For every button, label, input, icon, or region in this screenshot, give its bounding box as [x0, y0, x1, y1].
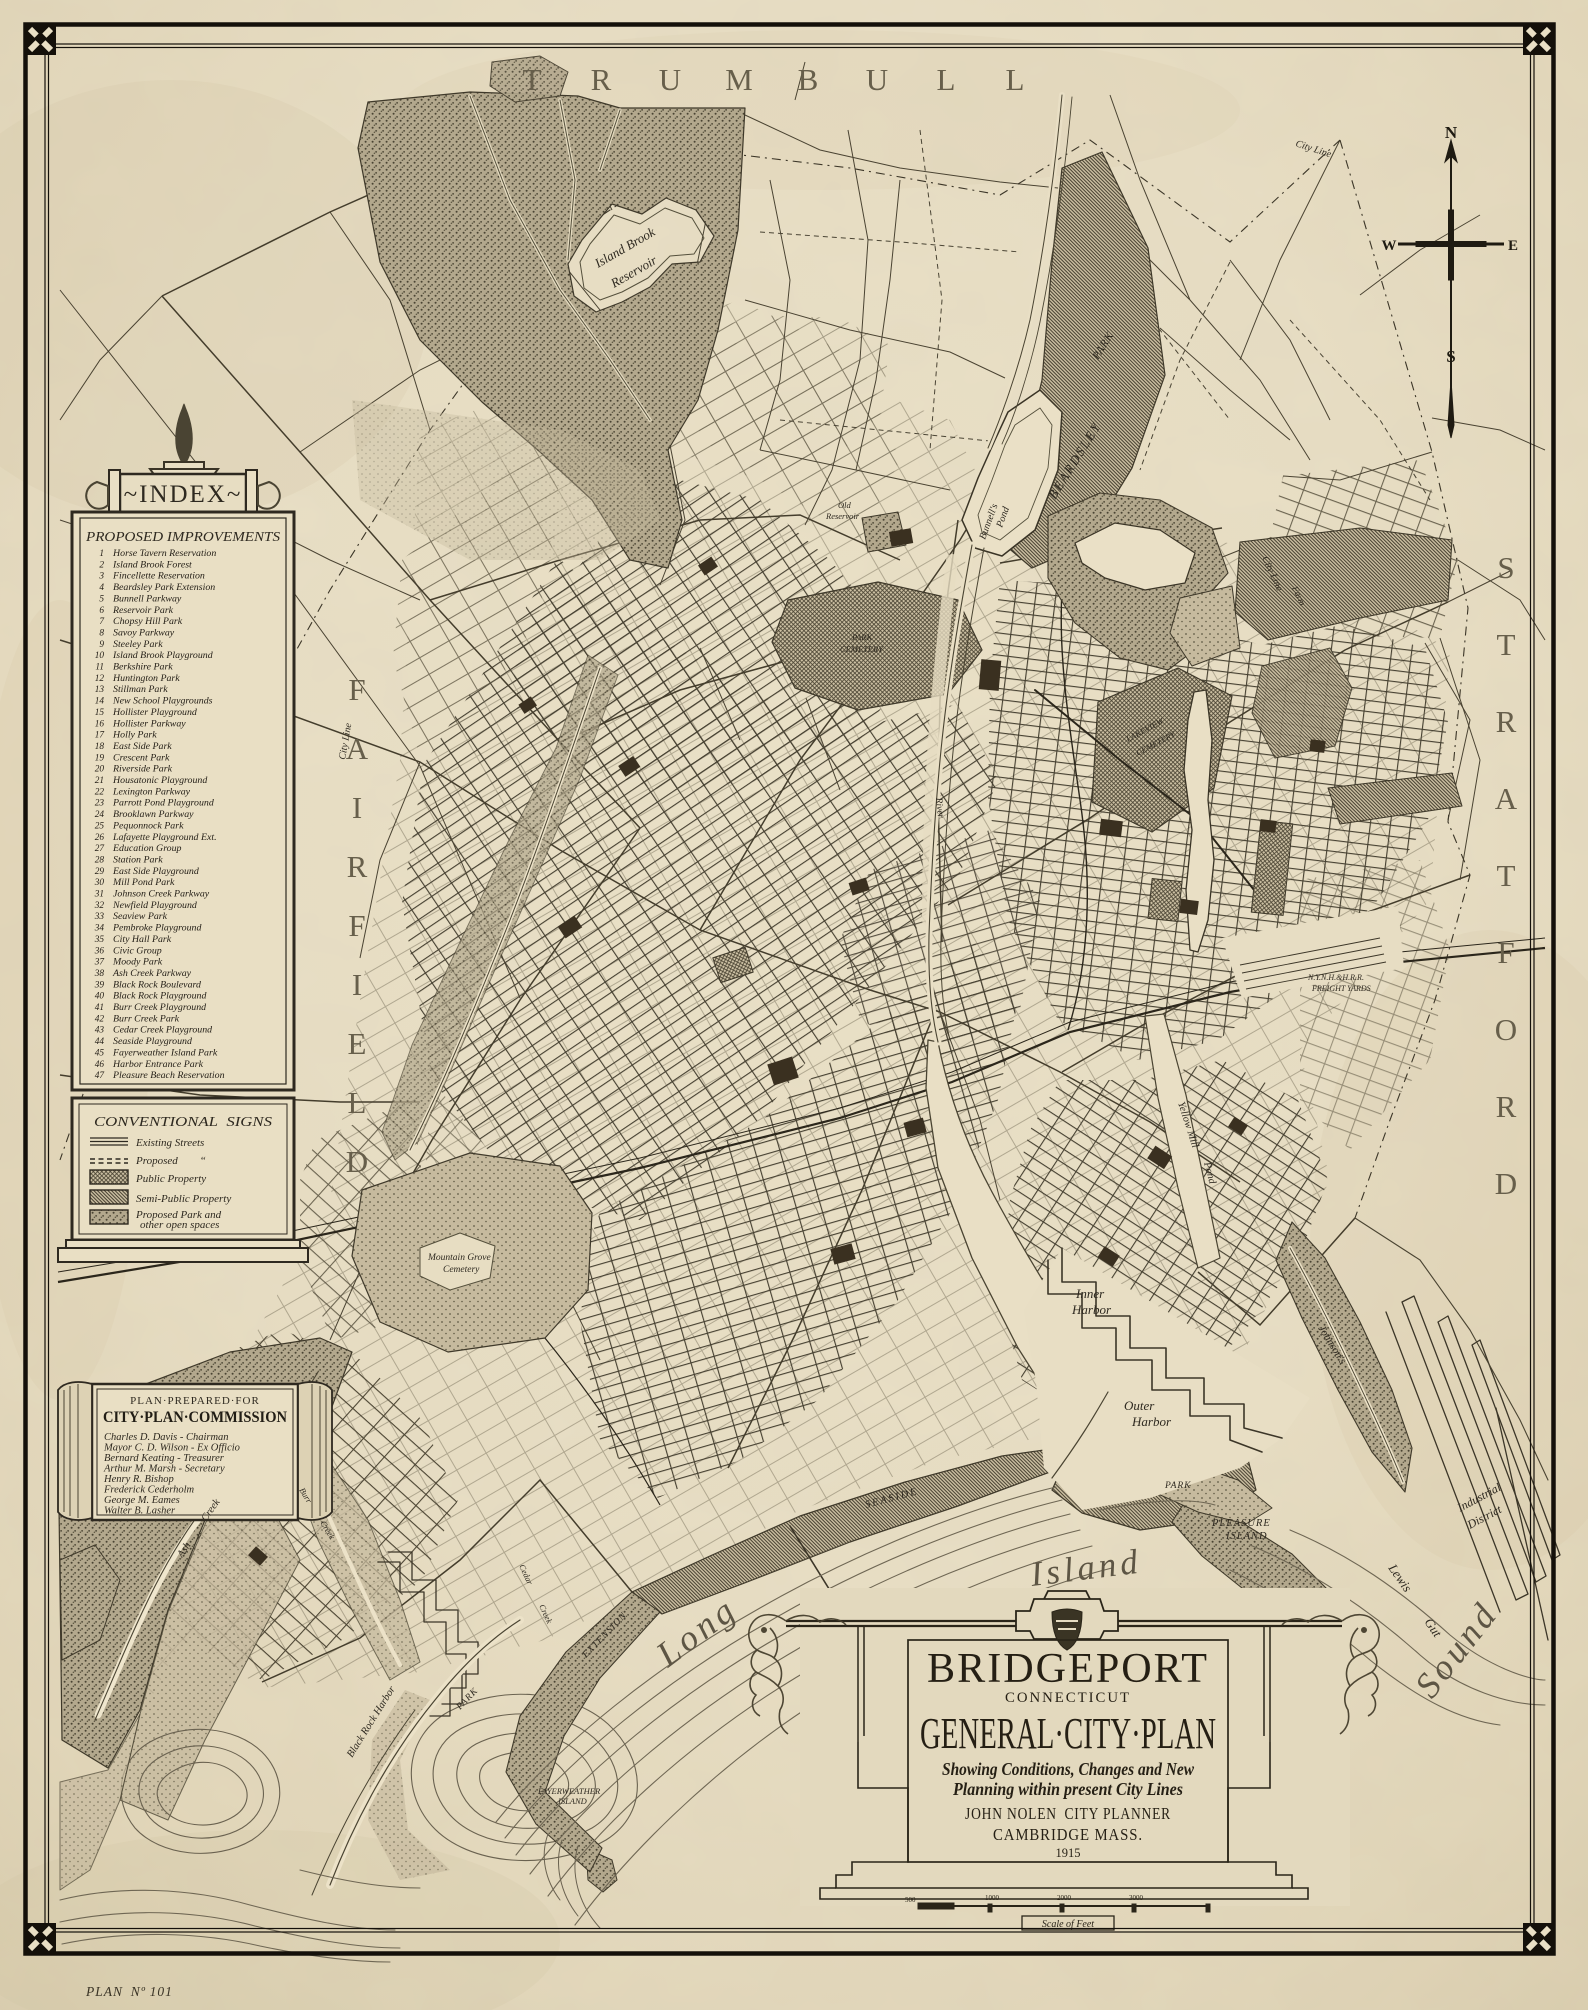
svg-text:FREIGHT YARDS: FREIGHT YARDS [1311, 984, 1371, 993]
svg-text:Public Property: Public Property [135, 1173, 206, 1185]
svg-text:Civic Group: Civic Group [113, 945, 162, 956]
svg-text:15: 15 [95, 708, 105, 718]
svg-text:18: 18 [95, 742, 105, 752]
svg-text:I: I [352, 790, 362, 825]
svg-text:Harbor Entrance Park: Harbor Entrance Park [112, 1059, 204, 1070]
svg-text:Burr Creek Park: Burr Creek Park [113, 1013, 180, 1024]
svg-text:R: R [347, 849, 368, 884]
svg-text:Fayerweather Island Park: Fayerweather Island Park [112, 1047, 218, 1058]
svg-text:Harbor: Harbor [1071, 1302, 1112, 1317]
svg-text:1000: 1000 [985, 1894, 1000, 1902]
svg-text:N.Y.N.H.&H.R.R.: N.Y.N.H.&H.R.R. [1307, 973, 1364, 982]
svg-text:George M. Eames: George M. Eames [104, 1495, 180, 1506]
svg-text:Bunnell Parkway: Bunnell Parkway [113, 593, 182, 604]
svg-text:30: 30 [94, 878, 105, 888]
svg-text:F: F [1497, 935, 1514, 970]
svg-text:Beardsley Park Extension: Beardsley Park Extension [113, 582, 215, 593]
svg-text:Harbor: Harbor [1131, 1414, 1172, 1429]
svg-text:O: O [1495, 1012, 1517, 1047]
svg-text:19: 19 [95, 753, 105, 763]
svg-text:32: 32 [94, 901, 105, 911]
svg-text:PROPOSED IMPROVEMENTS: PROPOSED IMPROVEMENTS [85, 530, 280, 545]
svg-text:3000: 3000 [1129, 1894, 1144, 1902]
svg-text:Riverside Park: Riverside Park [112, 764, 173, 775]
svg-text:Black Rock Boulevard: Black Rock Boulevard [113, 979, 201, 990]
svg-text:Black Rock Playground: Black Rock Playground [113, 991, 206, 1002]
svg-text:Cemetery: Cemetery [443, 1265, 480, 1275]
svg-text:F: F [348, 672, 365, 707]
svg-text:Hollister Parkway: Hollister Parkway [112, 718, 186, 729]
svg-text:23: 23 [95, 799, 105, 809]
svg-text:CEMETERY: CEMETERY [840, 644, 884, 654]
svg-text:PLAN Nº 101: PLAN Nº 101 [85, 1984, 173, 1999]
svg-text:City Hall Park: City Hall Park [113, 934, 172, 945]
svg-text:R: R [1496, 704, 1517, 739]
svg-text:PLEASURE: PLEASURE [1211, 1518, 1271, 1529]
svg-text:New School Playgrounds: New School Playgrounds [112, 696, 213, 707]
svg-text:Semi-Public Property: Semi-Public Property [136, 1193, 231, 1205]
svg-text:27: 27 [95, 844, 105, 854]
svg-text:Old: Old [838, 500, 852, 510]
svg-text:5: 5 [99, 594, 104, 604]
svg-text:Walter B. Lasher: Walter B. Lasher [104, 1506, 176, 1517]
svg-text:21: 21 [95, 776, 104, 786]
svg-text:Reservoir Park: Reservoir Park [112, 605, 174, 616]
svg-text:47: 47 [95, 1071, 105, 1081]
svg-text:16: 16 [95, 719, 105, 729]
svg-text:CITY·PLAN·COMMISSION: CITY·PLAN·COMMISSION [103, 1409, 287, 1426]
svg-text:W: W [1382, 238, 1397, 254]
svg-text:U: U [659, 62, 681, 97]
svg-text:T: T [523, 62, 542, 97]
svg-text:25: 25 [95, 821, 105, 831]
svg-text:M: M [725, 62, 753, 97]
svg-text:L: L [937, 62, 956, 97]
svg-text:Mountain Grove: Mountain Grove [427, 1253, 491, 1263]
svg-text:Cedar Creek Playground: Cedar Creek Playground [113, 1025, 212, 1036]
svg-text:2000: 2000 [1057, 1894, 1072, 1902]
svg-text:33: 33 [94, 912, 105, 922]
svg-text:Hollister Playground: Hollister Playground [112, 707, 197, 718]
svg-text:Huntington Park: Huntington Park [112, 673, 180, 684]
svg-text:41: 41 [95, 1003, 104, 1013]
svg-text:U: U [866, 62, 888, 97]
svg-text:7: 7 [99, 617, 104, 627]
svg-text:44: 44 [95, 1037, 105, 1047]
svg-text:1: 1 [99, 549, 104, 559]
svg-text:Planning within present City L: Planning within present City Lines [952, 1779, 1183, 1799]
svg-text:37: 37 [94, 958, 105, 968]
svg-text:Outer: Outer [1124, 1398, 1155, 1413]
svg-text:Berkshire Park: Berkshire Park [113, 662, 173, 673]
svg-text:Pequonnock Park: Pequonnock Park [112, 820, 184, 831]
svg-text:ISLAND: ISLAND [1225, 1531, 1268, 1542]
svg-text:Horse Tavern Reservation: Horse Tavern Reservation [112, 548, 216, 559]
svg-text:Crescent Park: Crescent Park [113, 752, 170, 763]
svg-text:I: I [352, 967, 362, 1002]
svg-text:other open spaces: other open spaces [140, 1219, 219, 1231]
svg-text:11: 11 [95, 663, 104, 673]
svg-text:1915: 1915 [1056, 1846, 1081, 1860]
svg-text:35: 35 [94, 935, 105, 945]
svg-text:East Side Playground: East Side Playground [112, 866, 199, 877]
svg-text:10: 10 [95, 651, 105, 661]
svg-text:CONVENTIONAL SIGNS: CONVENTIONAL SIGNS [94, 1115, 272, 1130]
svg-text:E: E [348, 1026, 367, 1061]
svg-text:Chopsy Hill Park: Chopsy Hill Park [113, 616, 183, 627]
svg-text:Burr Creek Playground: Burr Creek Playground [113, 1002, 206, 1013]
svg-text:Pembroke Playground: Pembroke Playground [112, 923, 201, 934]
svg-text:Lafayette Playground Ext.: Lafayette Playground Ext. [112, 832, 217, 843]
svg-text:Education Group: Education Group [112, 843, 182, 854]
svg-text:D: D [1495, 1166, 1517, 1201]
svg-text:Station Park: Station Park [113, 855, 163, 866]
svg-text:6: 6 [99, 606, 104, 616]
svg-text:13: 13 [95, 685, 105, 695]
svg-text:F: F [348, 908, 365, 943]
svg-text:20: 20 [95, 765, 105, 775]
svg-text:B: B [798, 62, 819, 97]
svg-text:31: 31 [94, 890, 104, 900]
svg-text:29: 29 [95, 867, 105, 877]
svg-text:Newfield Playground: Newfield Playground [112, 900, 197, 911]
svg-text:Arthur M. Marsh - Secretary: Arthur M. Marsh - Secretary [103, 1464, 225, 1475]
svg-text:R: R [591, 62, 612, 97]
svg-text:Existing Streets: Existing Streets [135, 1137, 204, 1149]
svg-text:Frederick Cederholm: Frederick Cederholm [103, 1485, 195, 1496]
svg-text:R: R [1496, 1089, 1517, 1124]
svg-text:ISLAND: ISLAND [557, 1796, 588, 1806]
svg-text:Holly Park: Holly Park [112, 730, 157, 741]
svg-text:T: T [1497, 858, 1516, 893]
svg-text:Seaview Park: Seaview Park [113, 911, 168, 922]
svg-text:12: 12 [95, 674, 105, 684]
svg-text:L: L [1006, 62, 1025, 97]
svg-text:Mayor C. D. Wilson - Ex Offici: Mayor C. D. Wilson - Ex Officio [103, 1443, 240, 1454]
svg-text:L: L [348, 1085, 367, 1120]
svg-text:39: 39 [94, 980, 105, 990]
svg-text:34: 34 [94, 924, 105, 934]
svg-text:28: 28 [95, 856, 105, 866]
svg-text:CAMBRIDGE MASS.: CAMBRIDGE MASS. [993, 1825, 1143, 1844]
svg-text:Reservoir: Reservoir [825, 511, 860, 521]
svg-text:Johnson Creek Parkway: Johnson Creek Parkway [113, 889, 210, 900]
svg-text:9: 9 [99, 640, 104, 650]
svg-text:46: 46 [95, 1060, 105, 1070]
svg-text:BRIDGEPORT: BRIDGEPORT [927, 1646, 1209, 1692]
svg-text:CONNECTICUT: CONNECTICUT [1005, 1690, 1131, 1706]
svg-text:East Side Park: East Side Park [112, 741, 172, 752]
svg-text:17: 17 [95, 731, 105, 741]
svg-text:Island Brook Playground: Island Brook Playground [112, 650, 213, 661]
svg-text:Lexington Parkway: Lexington Parkway [112, 786, 191, 797]
svg-text:~INDEX~: ~INDEX~ [124, 481, 243, 508]
svg-text:36: 36 [94, 946, 105, 956]
svg-text:Charles D. Davis - Chairman: Charles D. Davis - Chairman [104, 1432, 229, 1443]
svg-text:45: 45 [95, 1048, 105, 1058]
svg-text:Pleasure Beach Reservation: Pleasure Beach Reservation [112, 1070, 225, 1081]
svg-text:43: 43 [95, 1026, 105, 1036]
svg-text:PARK: PARK [1164, 1481, 1192, 1491]
svg-text:Savoy Parkway: Savoy Parkway [113, 628, 175, 639]
svg-text:4: 4 [99, 583, 104, 593]
svg-text:Stillman Park: Stillman Park [113, 684, 168, 695]
svg-text:Henry R. Bishop: Henry R. Bishop [103, 1474, 174, 1485]
svg-text:N: N [1445, 123, 1458, 142]
svg-text:Steeley Park: Steeley Park [113, 639, 163, 650]
svg-text:26: 26 [95, 833, 105, 843]
svg-text:PARK: PARK [851, 632, 873, 642]
svg-text:Bernard Keating - Treasurer: Bernard Keating - Treasurer [104, 1453, 225, 1464]
svg-text:S: S [1446, 347, 1455, 366]
svg-text:Housatonic Playground: Housatonic Playground [112, 775, 207, 786]
svg-text:PLAN·PREPARED·FOR: PLAN·PREPARED·FOR [130, 1395, 260, 1407]
svg-text:Island Brook Forest: Island Brook Forest [112, 559, 192, 570]
svg-text:T: T [1497, 627, 1516, 662]
svg-text:S: S [1497, 550, 1514, 585]
svg-text:JOHN NOLEN CITY PLANNER: JOHN NOLEN CITY PLANNER [965, 1804, 1171, 1823]
svg-text:Brooklawn Parkway: Brooklawn Parkway [113, 809, 194, 820]
svg-text:14: 14 [95, 697, 105, 707]
svg-text:24: 24 [95, 810, 105, 820]
svg-text:500: 500 [905, 1896, 916, 1904]
svg-text:E: E [1508, 238, 1518, 254]
svg-text:8: 8 [99, 629, 104, 639]
svg-text:Parrott Pond Playground: Parrott Pond Playground [112, 798, 214, 809]
svg-text:GENERAL·CITY·PLAN: GENERAL·CITY·PLAN [920, 1709, 1216, 1758]
svg-text:Ash Creek Parkway: Ash Creek Parkway [112, 968, 192, 979]
svg-text:A: A [1495, 781, 1518, 816]
svg-text:Seaside Playground: Seaside Playground [113, 1036, 192, 1047]
svg-text:2: 2 [99, 560, 104, 570]
svg-text:Inner: Inner [1075, 1286, 1105, 1301]
svg-text:40: 40 [95, 992, 105, 1002]
svg-text:3: 3 [98, 572, 104, 582]
svg-text:22: 22 [95, 787, 105, 797]
svg-text:38: 38 [94, 969, 105, 979]
svg-text:Moody Park: Moody Park [112, 957, 163, 968]
svg-text:Mill Pond Park: Mill Pond Park [112, 877, 175, 888]
svg-text:Showing Conditions, Changes an: Showing Conditions, Changes and New [942, 1759, 1194, 1779]
svg-text:D: D [346, 1144, 368, 1179]
svg-text:Fincellette Reservation: Fincellette Reservation [112, 571, 205, 582]
svg-text:FAYERWEATHER: FAYERWEATHER [537, 1786, 601, 1796]
svg-text:42: 42 [95, 1014, 105, 1024]
svg-text:Proposed “: Proposed “ [135, 1155, 206, 1167]
